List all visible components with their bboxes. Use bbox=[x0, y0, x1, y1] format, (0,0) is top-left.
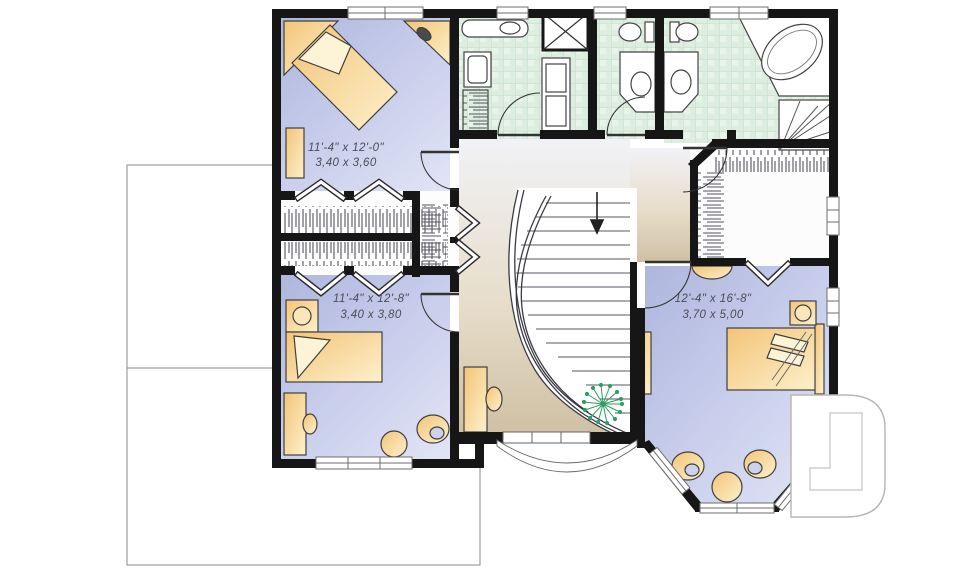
sink bbox=[500, 22, 520, 34]
wc-window bbox=[594, 7, 626, 19]
lamp bbox=[293, 307, 311, 325]
floor-plan-canvas: 11'-4" x 12'-0" 3,40 x 3,60 11'-4" x 12'… bbox=[0, 0, 960, 569]
desk-chair bbox=[303, 414, 317, 434]
toilet-tank-wc bbox=[645, 22, 654, 42]
ensuite-top-window bbox=[710, 7, 768, 19]
bedroom-1-metric: 3,40 x 3,60 bbox=[315, 157, 377, 169]
bedroom-2-bottom-window bbox=[316, 457, 412, 469]
hall-desk bbox=[464, 367, 487, 432]
closet-1-rod bbox=[283, 206, 446, 233]
wic-rod-left bbox=[698, 172, 724, 262]
hall-pocket-floor bbox=[630, 148, 690, 262]
bathroom-window bbox=[497, 7, 528, 19]
toilet-bowl-wc bbox=[619, 23, 641, 41]
ensuite-sink bbox=[671, 70, 691, 94]
bedroom-2-imperial: 11'-4" x 12'-8" bbox=[333, 293, 409, 305]
round-table bbox=[712, 472, 742, 502]
bedroom-1-imperial: 11'-4" x 12'-0" bbox=[308, 142, 384, 154]
bay-window-bottom bbox=[700, 503, 774, 513]
bedroom-1-top-window bbox=[348, 7, 423, 19]
hall-chair bbox=[486, 387, 502, 411]
master-metric: 3,70 x 5,00 bbox=[682, 309, 744, 321]
master-imperial: 12'-4" x 16'-8" bbox=[675, 293, 752, 305]
cabinet-door-1 bbox=[546, 64, 566, 92]
linen-closet-rod bbox=[422, 202, 448, 273]
fan-chair-left-seat bbox=[685, 464, 699, 476]
ottoman bbox=[381, 431, 407, 457]
cabinet-door-2 bbox=[546, 96, 566, 126]
brand-logo-d bbox=[791, 395, 885, 517]
fan-chair-right-seat bbox=[748, 462, 762, 474]
shower-base bbox=[468, 56, 487, 83]
right-wall-window-1 bbox=[827, 197, 839, 235]
wc-sink bbox=[631, 72, 651, 96]
lamp bbox=[795, 305, 811, 321]
floor-plan-drawing: 11'-4" x 12'-0" 3,40 x 3,60 11'-4" x 12'… bbox=[0, 0, 960, 569]
armchair-seat bbox=[430, 427, 444, 439]
bedroom-2-metric: 3,40 x 3,80 bbox=[340, 309, 402, 321]
linen-shelves bbox=[463, 90, 488, 131]
headboard bbox=[815, 324, 824, 394]
closet-2-rod bbox=[283, 242, 446, 266]
toilet-bowl-ensuite bbox=[676, 23, 698, 41]
right-wall-window-2 bbox=[827, 288, 839, 326]
wic-rod-top bbox=[714, 150, 830, 172]
dresser bbox=[286, 128, 304, 178]
